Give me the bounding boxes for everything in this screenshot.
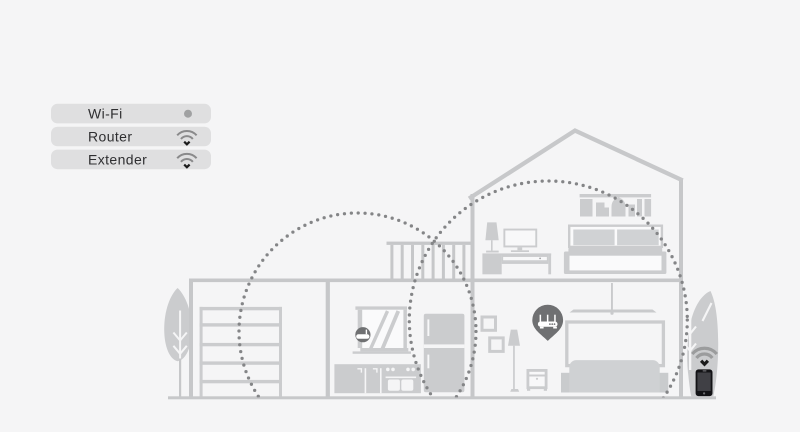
- svg-text:Wi-Fi: Wi-Fi: [88, 106, 123, 122]
- svg-text:Extender: Extender: [88, 152, 147, 168]
- svg-text:Router: Router: [88, 129, 132, 145]
